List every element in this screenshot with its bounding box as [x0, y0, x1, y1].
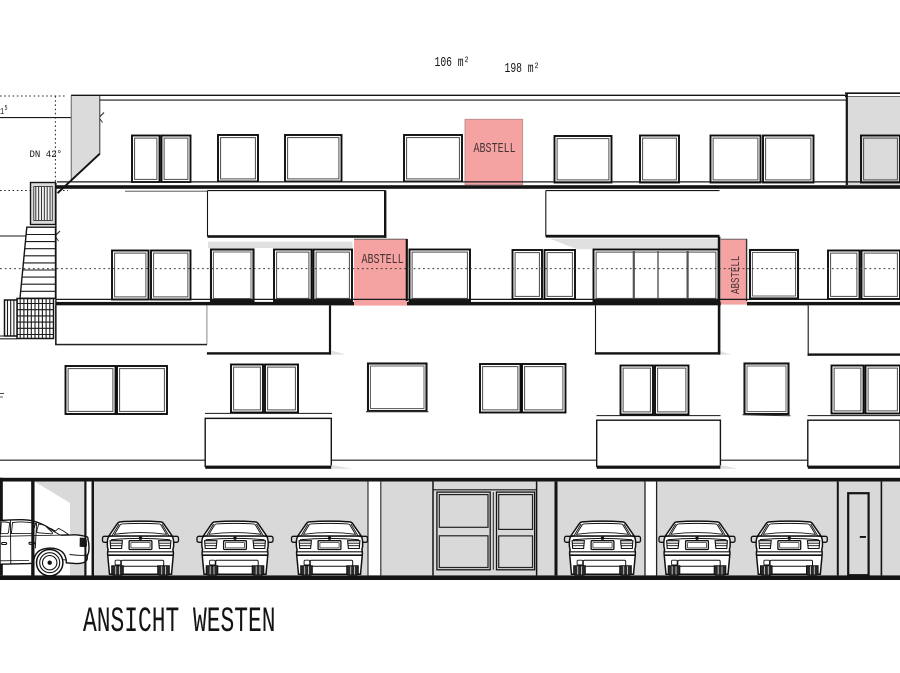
- svg-text:106 m²: 106 m²: [435, 55, 470, 71]
- svg-text:198 m²: 198 m²: [505, 61, 540, 77]
- svg-text:5: 5: [5, 104, 8, 112]
- svg-text:1: 1: [0, 107, 4, 117]
- svg-text:ANSICHT WESTEN: ANSICHT WESTEN: [83, 601, 276, 641]
- svg-text:ABSTELL: ABSTELL: [474, 141, 516, 157]
- svg-text:DN 42°: DN 42°: [30, 148, 63, 160]
- svg-text:ABSTELL: ABSTELL: [730, 256, 744, 294]
- svg-text:ABSTELL: ABSTELL: [362, 252, 404, 268]
